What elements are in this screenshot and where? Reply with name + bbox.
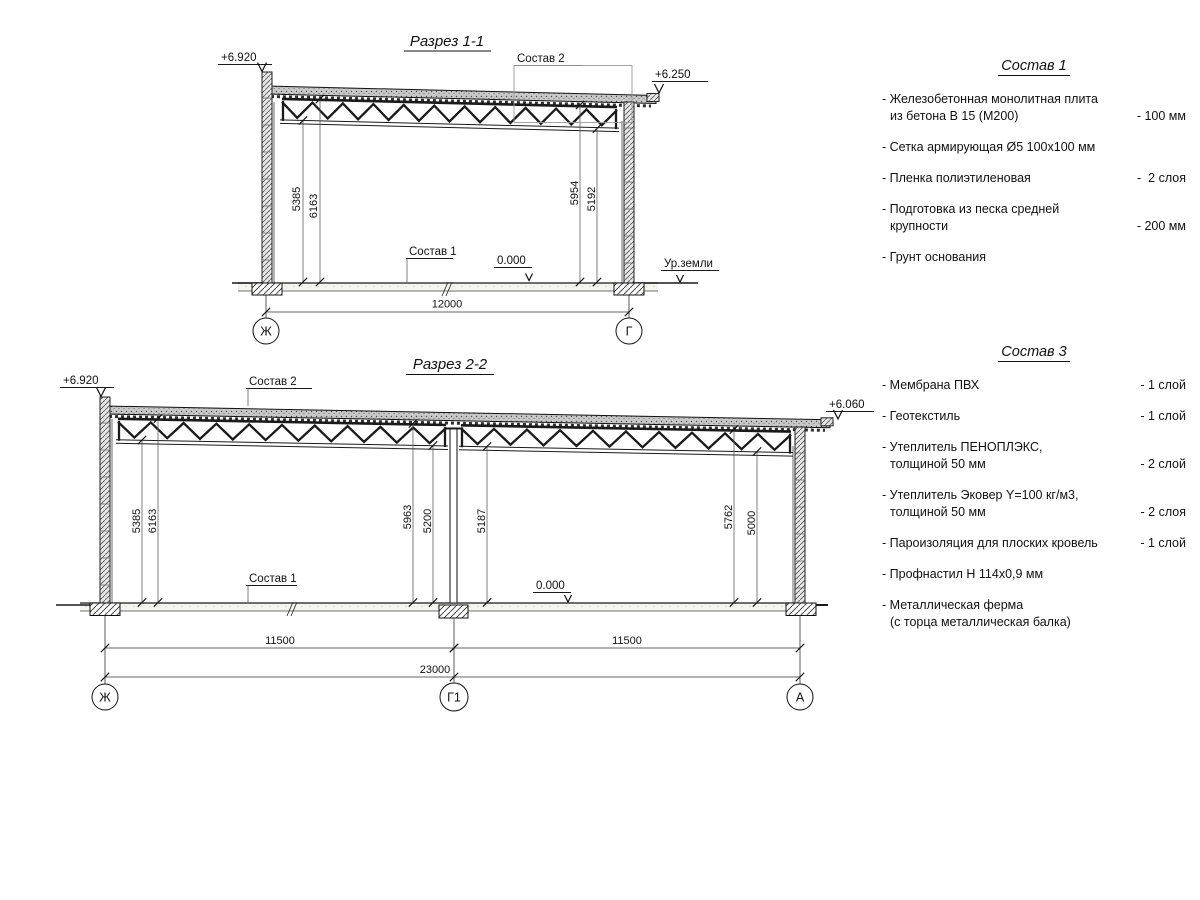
item-value: - 1 слой <box>1134 408 1186 425</box>
list-item: - Подготовка из песка среднейкрупности -… <box>882 201 1186 235</box>
list-item: - Металлическая ферма(с торца металличес… <box>882 597 1186 631</box>
s2-dim-right-2: 5000 <box>746 511 758 535</box>
list-item: - Профнастил Н 114х0,9 мм <box>882 566 1186 583</box>
sostav-1-title: Состав 1 <box>882 58 1186 74</box>
list-item: - Железобетонная монолитная плитаиз бето… <box>882 91 1186 125</box>
s1-axis-right-label: Г <box>626 325 633 339</box>
sostav-3-panel: Состав 3 - Мембрана ПВХ - 1 слой - Геоте… <box>882 344 1186 645</box>
item-line2: (с торца металлическая балка) <box>882 614 1180 631</box>
item-line1: - Подготовка из песка средней <box>882 202 1059 216</box>
item-text: - Пароизоляция для плоских кровель <box>882 535 1134 552</box>
s2-dim-bay-1: 11500 <box>265 635 295 647</box>
s1-dim-right-1: 5954 <box>569 181 581 205</box>
list-item: - Утеплитель Эковер Y=100 кг/м3,толщиной… <box>882 487 1186 521</box>
item-text: - Сетка армирующая Ø5 100х100 мм <box>882 139 1180 156</box>
s2-zero-level: 0.000 <box>536 580 565 592</box>
list-item: - Пароизоляция для плоских кровель - 1 с… <box>882 535 1186 552</box>
item-line1: - Утеплитель ПЕНОПЛЭКС, <box>882 440 1042 454</box>
list-item: - Пленка полиэтиленовая - 2 слоя <box>882 170 1186 187</box>
item-value: - 2 слоя <box>1135 504 1186 521</box>
list-item: - Геотекстиль - 1 слой <box>882 408 1186 425</box>
s2-level-right: +6.060 <box>829 399 865 411</box>
item-line1: - Сетка армирующая Ø5 100х100 мм <box>882 140 1095 154</box>
s2-dim-right-1: 5762 <box>723 505 735 529</box>
item-text: - Утеплитель Эковер Y=100 кг/м3,толщиной… <box>882 487 1135 521</box>
s1-level-right: +6.250 <box>655 69 691 81</box>
s2-level-left: +6.920 <box>63 375 99 387</box>
item-text: - Геотекстиль <box>882 408 1134 425</box>
item-text: - Пленка полиэтиленовая <box>882 170 1131 187</box>
item-value: - 2 слой <box>1134 456 1186 473</box>
list-item: - Сетка армирующая Ø5 100х100 мм <box>882 139 1186 156</box>
s1-callout-sostav1: Состав 1 <box>409 246 457 258</box>
item-text: - Грунт основания <box>882 249 1180 266</box>
s1-dim-right-2: 5192 <box>586 187 598 211</box>
item-value: - 200 мм <box>1131 218 1186 235</box>
item-line2: из бетона В 15 (М200) <box>882 108 1131 125</box>
item-line2: толщиной 50 мм <box>882 456 1134 473</box>
item-value: - 2 слоя <box>1131 170 1186 187</box>
s1-dim-left-2: 6163 <box>308 194 320 218</box>
section-2-title: Разрез 2-2 <box>413 356 488 373</box>
item-line1: - Пленка полиэтиленовая <box>882 171 1031 185</box>
s1-axis-left-label: Ж <box>260 325 272 339</box>
s2-dim-mid-3: 5187 <box>476 509 488 533</box>
sostav-3-title-text: Состав 3 <box>998 344 1069 362</box>
item-line1: - Геотекстиль <box>882 409 960 423</box>
list-item: - Утеплитель ПЕНОПЛЭКС,толщиной 50 мм - … <box>882 439 1186 473</box>
s2-dim-mid-2: 5200 <box>422 509 434 533</box>
s1-ground-label: Ур.земли <box>664 258 713 270</box>
s2-callout-sostav2: Состав 2 <box>249 376 297 388</box>
s1-zero-level: 0.000 <box>497 255 526 267</box>
s2-dim-left-1: 5385 <box>131 509 143 533</box>
section-1-1-annotations: Разрез 1-1 +6.920 +6.250 Состав 2 Состав… <box>221 33 713 344</box>
item-text: - Металлическая ферма(с торца металличес… <box>882 597 1180 631</box>
s1-callout-sostav2: Состав 2 <box>517 53 565 65</box>
item-line1: - Железобетонная монолитная плита <box>882 92 1098 106</box>
s2-axis-left-label: Ж <box>99 691 111 705</box>
item-line2: толщиной 50 мм <box>882 504 1135 521</box>
s2-dim-left-2: 6163 <box>147 509 159 533</box>
item-line1: - Утеплитель Эковер Y=100 кг/м3, <box>882 488 1078 502</box>
item-line1: - Мембрана ПВХ <box>882 378 979 392</box>
item-value: - 1 слой <box>1134 535 1186 552</box>
s2-dim-total: 23000 <box>420 664 451 676</box>
sostav-1-title-text: Состав 1 <box>998 58 1069 76</box>
list-item: - Грунт основания <box>882 249 1186 266</box>
item-text: - Железобетонная монолитная плитаиз бето… <box>882 91 1131 125</box>
item-text: - Профнастил Н 114х0,9 мм <box>882 566 1180 583</box>
item-line2: крупности <box>882 218 1131 235</box>
s2-dim-bay-2: 11500 <box>612 635 642 647</box>
s1-level-left: +6.920 <box>221 52 257 64</box>
s2-dim-mid-1: 5963 <box>402 505 414 529</box>
s1-dim-left-1: 5385 <box>291 187 303 211</box>
item-value: - 100 мм <box>1131 108 1186 125</box>
section-1-title: Разрез 1-1 <box>410 33 484 50</box>
item-value: - 1 слой <box>1134 377 1186 394</box>
s2-axis-right-label: А <box>796 691 805 705</box>
item-text: - Подготовка из песка среднейкрупности <box>882 201 1131 235</box>
item-line1: - Грунт основания <box>882 250 986 264</box>
sostav-3-title: Состав 3 <box>882 344 1186 360</box>
item-line1: - Металлическая ферма <box>882 598 1023 612</box>
sostav-1-panel: Состав 1 - Железобетонная монолитная пли… <box>882 58 1186 280</box>
item-text: - Мембрана ПВХ <box>882 377 1134 394</box>
drawing-sheet: { "section1": { "title": "Разрез 1-1", "… <box>0 0 1200 900</box>
s2-axis-mid-label: Г1 <box>447 691 461 705</box>
item-text: - Утеплитель ПЕНОПЛЭКС,толщиной 50 мм <box>882 439 1134 473</box>
item-line1: - Профнастил Н 114х0,9 мм <box>882 567 1043 581</box>
s1-dim-span: 12000 <box>432 299 463 311</box>
item-line1: - Пароизоляция для плоских кровель <box>882 536 1098 550</box>
list-item: - Мембрана ПВХ - 1 слой <box>882 377 1186 394</box>
s2-callout-sostav1: Состав 1 <box>249 573 297 585</box>
